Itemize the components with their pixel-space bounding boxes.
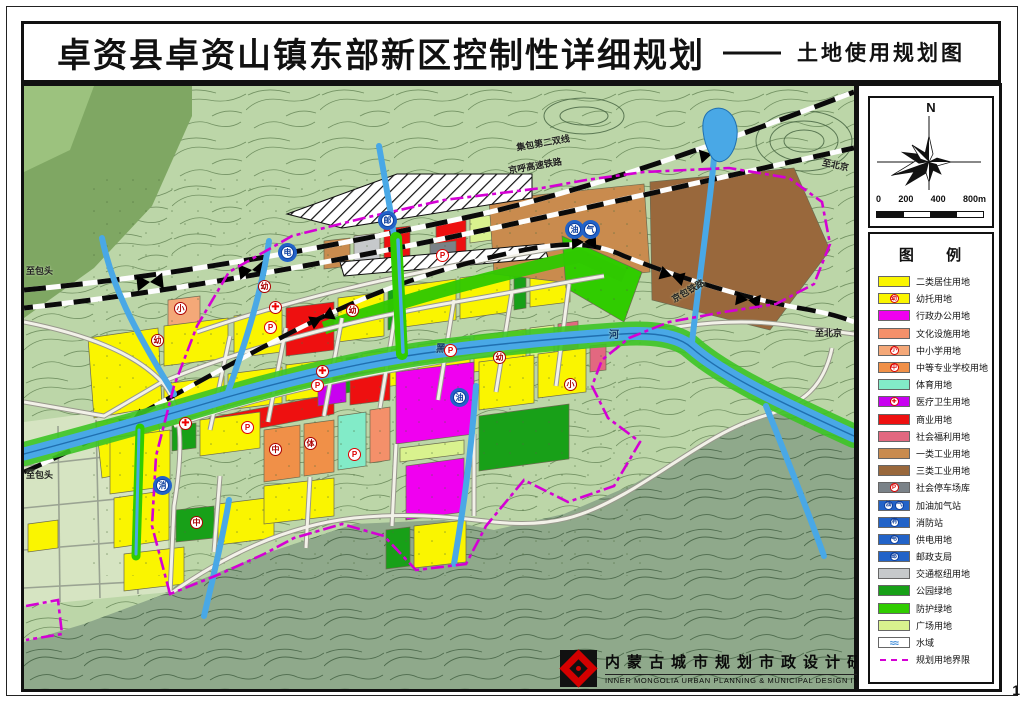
legend-label: 消防站 (916, 516, 943, 529)
legend-rows: 二类居住用地幼幼托用地行政办公用地文化设施用地小中小学用地中中等专业学校用地体育… (870, 271, 992, 668)
legend-label: 幼托用地 (916, 292, 952, 305)
legend-symbol-icon: 中 (890, 363, 899, 372)
map-facility-icon: ✚ (269, 301, 282, 314)
legend-label: 商业用地 (916, 413, 952, 426)
map-facility-icon: P (436, 249, 449, 262)
map-area: 至包头至包头至北京至北京集包第二双线京呼高速铁路京包铁路黑河幼幼幼幼小小中中体P… (21, 83, 857, 692)
legend-label: 二类居住用地 (916, 275, 970, 288)
water-wave-icon: ≈≈ (890, 638, 898, 648)
map-text-label: 至北京 (815, 326, 842, 339)
map-facility-icon: 小 (174, 302, 187, 315)
legend-label: 规划用地界限 (916, 653, 970, 666)
sidebar: N 0200400 (857, 83, 1002, 692)
legend-swatch (878, 431, 910, 442)
legend-label: 广场用地 (916, 619, 952, 632)
map-facility-icon: ✚ (316, 365, 329, 378)
legend-symbol-icon: 消 (890, 518, 899, 527)
legend-label: 社会福利用地 (916, 430, 970, 443)
legend-row: 消消防站 (878, 514, 992, 531)
legend-row: 小中小学用地 (878, 342, 992, 359)
map-facility-icon: 中 (190, 516, 203, 529)
map-facility-icon: 中 (269, 443, 282, 456)
map-facility-icon: 幼 (258, 280, 271, 293)
legend-label: 防护绿地 (916, 602, 952, 615)
legend-swatch (878, 568, 910, 579)
legend-swatch: 电 (878, 534, 910, 545)
legend-swatch: 油气 (878, 500, 910, 511)
map-facility-icon: P (264, 321, 277, 334)
legend-swatch (878, 414, 910, 425)
map-facility-icon: ✚ (179, 417, 192, 430)
map-facility-icon: 幼 (493, 351, 506, 364)
map-facility-icon: P (241, 421, 254, 434)
compass-rose-icon (870, 112, 988, 190)
scale-bar (876, 211, 984, 218)
map-facility-icon: 电 (281, 246, 294, 259)
legend-label: 体育用地 (916, 378, 952, 391)
legend-symbol-icon: 幼 (890, 294, 899, 303)
legend-row: 规划用地界限 (878, 651, 992, 668)
legend-swatch: 邮 (878, 551, 910, 562)
legend-label: 交通枢纽用地 (916, 567, 970, 580)
legend-swatch (878, 310, 910, 321)
legend-row: 幼幼托用地 (878, 290, 992, 307)
title-dash: —— (723, 35, 779, 69)
map-facility-icon: 油 (568, 223, 581, 236)
page-subtitle: 土地使用规划图 (797, 37, 965, 67)
map-facility-icon: 邮 (381, 214, 394, 227)
legend-row: ✚医疗卫生用地 (878, 393, 992, 410)
legend-row: 一类工业用地 (878, 445, 992, 462)
map-facility-icon: 体 (304, 437, 317, 450)
map-facility-icon: 幼 (151, 334, 164, 347)
boundary-line-icon (880, 659, 908, 661)
compass-box: N 0200400 (868, 96, 994, 228)
legend-label: 三类工业用地 (916, 464, 970, 477)
legend-row: 公园绿地 (878, 582, 992, 599)
legend-row: 邮邮政支局 (878, 548, 992, 565)
legend-box: 图 例 二类居住用地幼幼托用地行政办公用地文化设施用地小中小学用地中中等专业学校… (868, 232, 994, 684)
legend-swatch: 幼 (878, 293, 910, 304)
legend-row: 三类工业用地 (878, 462, 992, 479)
map-facility-icon: P (311, 379, 324, 392)
legend-swatch: P (878, 482, 910, 493)
legend-symbol-icon: 油 (884, 501, 893, 510)
legend-label: 公园绿地 (916, 584, 952, 597)
legend-swatch (878, 585, 910, 596)
map-facility-icon: 气 (584, 223, 597, 236)
legend-symbol-icon: P (890, 483, 899, 492)
map-facility-icon: 小 (564, 378, 577, 391)
legend-row: 油气加油加气站 (878, 496, 992, 513)
legend-label: 邮政支局 (916, 550, 952, 563)
legend-symbol-icon: ✚ (890, 397, 899, 406)
legend-row: 防护绿地 (878, 600, 992, 617)
legend-swatch (878, 276, 910, 287)
legend-swatch (878, 465, 910, 476)
legend-row: 商业用地 (878, 411, 992, 428)
legend-row: 体育用地 (878, 376, 992, 393)
map-text-label: 至包头 (26, 264, 53, 277)
legend-title: 图 例 (870, 234, 992, 271)
legend-swatch (878, 379, 910, 390)
legend-row: ≈≈水域 (878, 634, 992, 651)
map-facility-icon: 油 (453, 391, 466, 404)
legend-label: 加油加气站 (916, 499, 961, 512)
title-bar: 卓资县卓资山镇东部新区控制性详细规划 —— 土地使用规划图 (21, 21, 1001, 83)
institute-logo-icon (560, 650, 597, 687)
legend-label: 供电用地 (916, 533, 952, 546)
legend-swatch: 消 (878, 517, 910, 528)
page-number: 1 (1012, 682, 1020, 698)
legend-label: 水域 (916, 636, 934, 649)
legend-label: 中小学用地 (916, 344, 961, 357)
legend-swatch (878, 328, 910, 339)
legend-row: 电供电用地 (878, 531, 992, 548)
legend-swatch (878, 654, 910, 665)
legend-label: 文化设施用地 (916, 327, 970, 340)
map-facility-icon: 消 (156, 479, 169, 492)
legend-label: 一类工业用地 (916, 447, 970, 460)
legend-symbol-icon: 邮 (890, 552, 899, 561)
page-title: 卓资县卓资山镇东部新区控制性详细规划 (57, 28, 705, 77)
legend-symbol-icon: 小 (890, 346, 899, 355)
map-text-label: 至包头 (26, 468, 53, 481)
map-facility-icon: P (348, 448, 361, 461)
legend-symbol-icon: 电 (890, 535, 899, 544)
institute-footer: 内蒙古城市规划市政设计研究院 INNER MONGOLIA URBAN PLAN… (560, 646, 856, 690)
legend-row: 文化设施用地 (878, 325, 992, 342)
legend-row: P社会停车场库 (878, 479, 992, 496)
legend-label: 医疗卫生用地 (916, 395, 970, 408)
map-facility-icon: 幼 (346, 304, 359, 317)
legend-row: 行政办公用地 (878, 307, 992, 324)
legend-row: 二类居住用地 (878, 273, 992, 290)
legend-label: 中等专业学校用地 (916, 361, 988, 374)
land-use-map (24, 86, 854, 689)
scale-labels: 0200400800m (876, 194, 986, 204)
legend-swatch (878, 603, 910, 614)
legend-swatch: ≈≈ (878, 637, 910, 648)
legend-symbol-icon: 气 (895, 501, 904, 510)
legend-label: 行政办公用地 (916, 309, 970, 322)
legend-row: 社会福利用地 (878, 428, 992, 445)
legend-swatch: 中 (878, 362, 910, 373)
legend-swatch: ✚ (878, 396, 910, 407)
legend-row: 广场用地 (878, 617, 992, 634)
legend-swatch (878, 448, 910, 459)
planning-map-page: 卓资县卓资山镇东部新区控制性详细规划 —— 土地使用规划图 (0, 0, 1024, 702)
map-text-label: 河 (609, 326, 619, 341)
legend-row: 中中等专业学校用地 (878, 359, 992, 376)
legend-swatch: 小 (878, 345, 910, 356)
map-facility-icon: P (444, 344, 457, 357)
legend-label: 社会停车场库 (916, 481, 970, 494)
legend-swatch (878, 620, 910, 631)
legend-row: 交通枢纽用地 (878, 565, 992, 582)
